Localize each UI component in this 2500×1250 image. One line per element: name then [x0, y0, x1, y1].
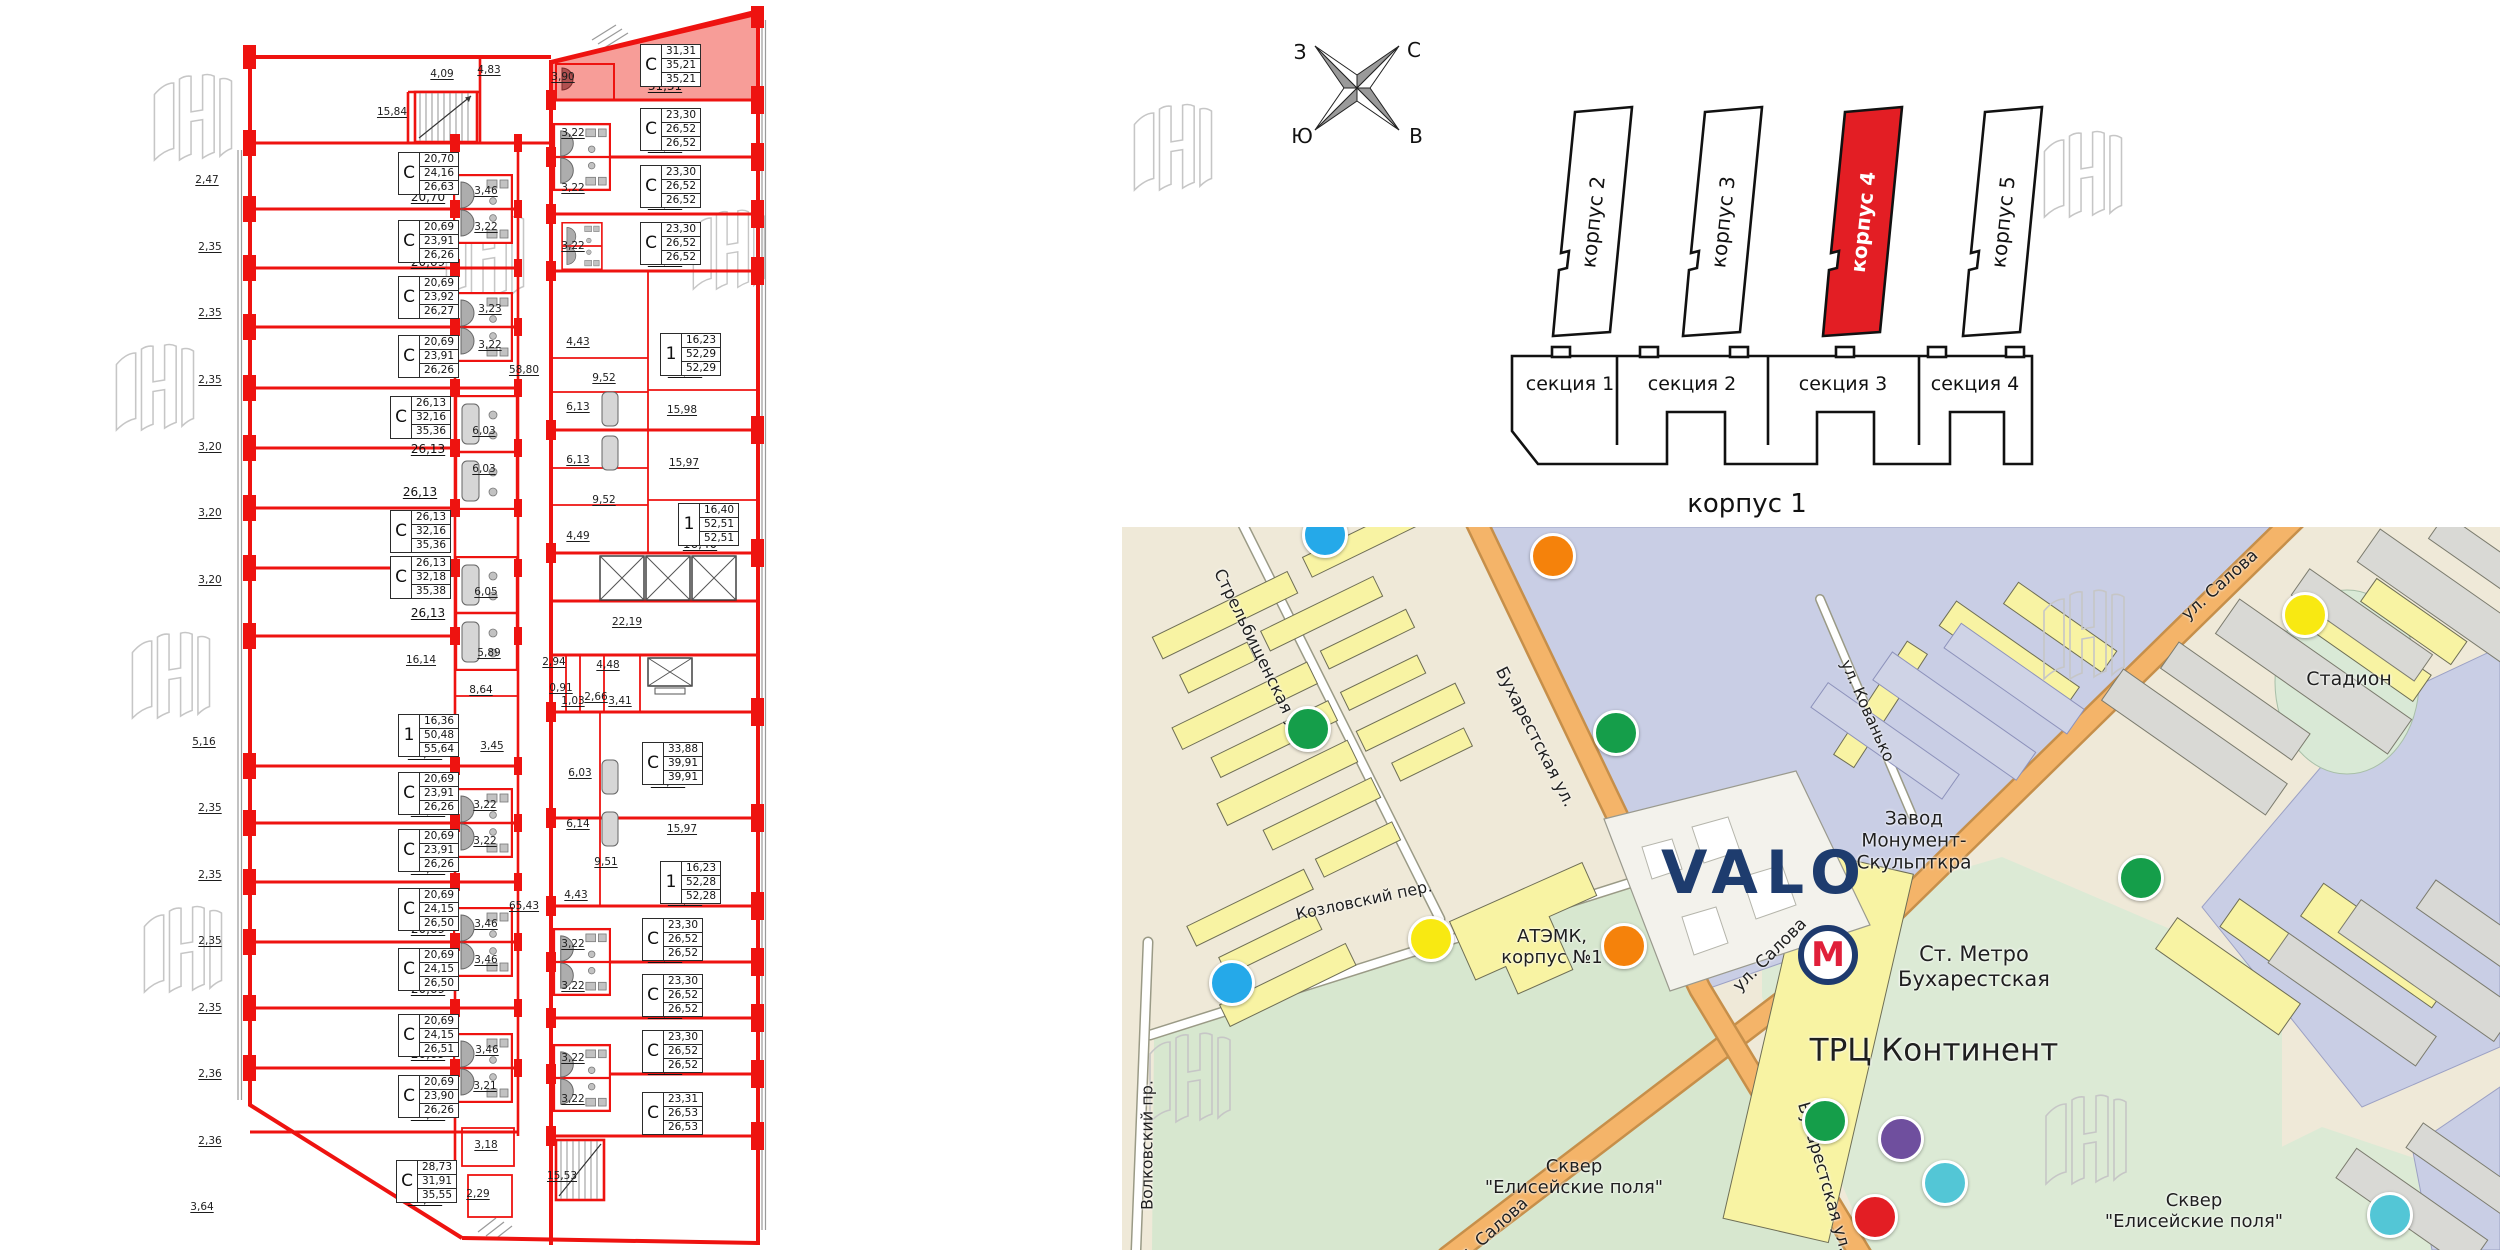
unit-label[interactable]: С20,6923,9226,27 — [398, 276, 459, 319]
dimension-label: 2,35 — [198, 307, 221, 319]
section-2[interactable]: секция 2 — [1648, 373, 1736, 395]
map-marker[interactable] — [1601, 923, 1647, 969]
section-4[interactable]: секция 4 — [1931, 373, 2019, 395]
unit-label[interactable]: 116,4052,5152,51 — [678, 503, 739, 546]
unit-label[interactable]: С23,3026,5226,52 — [642, 1030, 703, 1073]
unit-label[interactable]: 116,2352,2952,29 — [660, 333, 721, 376]
map-label: Козловский пер. — [1294, 877, 1434, 924]
unit-label[interactable]: С26,1332,1835,38 — [390, 556, 451, 599]
metro-icon: М — [1798, 925, 1858, 985]
dimension-label: 58,80 — [509, 364, 539, 376]
unit-label[interactable]: С28,7331,9135,55 — [396, 1160, 457, 1203]
map-marker[interactable] — [2118, 855, 2164, 901]
dimension-label: 15,97 — [667, 823, 697, 835]
dimension-label: 2,35 — [198, 802, 221, 814]
dimension-label: 3,18 — [474, 1139, 497, 1151]
dimension-label: 3,22 — [561, 938, 584, 950]
unit-label[interactable]: С26,1332,1635,36 — [390, 510, 451, 553]
dimension-label: 5,89 — [477, 647, 500, 659]
unit-label[interactable]: 116,2352,2852,28 — [660, 861, 721, 904]
unit-label[interactable]: С20,6923,9126,26 — [398, 335, 459, 378]
page: С20,7024,1626,6320,70С20,6923,9126,2620,… — [0, 0, 2500, 1250]
unit-label[interactable]: С20,6923,9126,26 — [398, 772, 459, 815]
unit-label[interactable]: С23,3026,5226,52 — [642, 974, 703, 1017]
room-area-label: 26,13 — [403, 485, 437, 499]
dimension-label: 2,66 — [584, 691, 607, 703]
dimension-label: 15,53 — [547, 1170, 577, 1182]
dimension-label: 22,19 — [612, 616, 642, 628]
unit-label[interactable]: С20,6924,1526,51 — [398, 1014, 459, 1057]
dimension-label: 0,91 — [549, 682, 572, 694]
map-marker[interactable] — [2282, 592, 2328, 638]
dimension-label: 3,22 — [478, 339, 501, 351]
room-area-label: 26,13 — [411, 606, 445, 620]
dimension-label: 6,03 — [472, 425, 495, 437]
dimension-label: 2,36 — [198, 1068, 221, 1080]
map-label: Волковский пр. — [1139, 1080, 1158, 1210]
floorplan-labels: С20,7024,1626,6320,70С20,6923,9126,2620,… — [0, 0, 800, 1250]
dimension-label: 65,43 — [509, 900, 539, 912]
dimension-label: 5,16 — [192, 736, 215, 748]
map-label: Ст. Метро Бухарестская — [1898, 942, 2050, 992]
building1-shape — [1512, 347, 2032, 464]
dimension-label: 2,29 — [466, 1188, 489, 1200]
dimension-label: 6,05 — [474, 586, 497, 598]
map-label: АТЭМК, корпус №1 — [1501, 926, 1603, 968]
unit-label[interactable]: 116,3650,4855,64 — [398, 714, 459, 757]
dimension-label: 2,35 — [198, 935, 221, 947]
map-label: ТРЦ Континент — [1810, 1033, 2059, 1070]
dimension-label: 6,13 — [566, 401, 589, 413]
room-area-label: 26,13 — [411, 442, 445, 456]
dimension-label: 9,52 — [592, 372, 615, 384]
section-1[interactable]: секция 1 — [1526, 373, 1614, 395]
dimension-label: 4,09 — [430, 68, 453, 80]
compass-west: З — [1294, 40, 1307, 64]
building1-label: корпус 1 — [1687, 489, 1807, 519]
map-marker[interactable] — [1209, 960, 1255, 1006]
dimension-label: 2,36 — [198, 1135, 221, 1147]
dimension-label: 3,64 — [190, 1201, 213, 1213]
dimension-label: 3,20 — [198, 574, 221, 586]
dimension-label: 3,20 — [198, 441, 221, 453]
dimension-label: 8,64 — [469, 684, 492, 696]
unit-label[interactable]: С23,3026,5226,52 — [640, 222, 701, 265]
dimension-label: 15,84 — [377, 106, 407, 118]
unit-label[interactable]: С20,6923,9126,26 — [398, 220, 459, 263]
map-marker[interactable] — [1302, 527, 1348, 558]
dimension-label: 3,20 — [198, 507, 221, 519]
dimension-label: 3,22 — [561, 1093, 584, 1105]
compass-north: С — [1407, 38, 1421, 62]
map-label: Стадион — [2306, 668, 2392, 690]
dimension-label: 3,21 — [473, 1080, 496, 1092]
map-marker[interactable] — [1852, 1194, 1898, 1240]
dimension-label: 4,83 — [477, 64, 500, 76]
dimension-label: 3,22 — [474, 221, 497, 233]
unit-label[interactable]: С23,3026,5226,52 — [640, 108, 701, 151]
unit-label[interactable]: С20,7024,1626,63 — [398, 152, 459, 195]
unit-label[interactable]: С26,1332,1635,36 — [390, 396, 451, 439]
dimension-label: 4,48 — [596, 659, 619, 671]
unit-label[interactable]: С23,3026,5226,52 — [640, 165, 701, 208]
map-marker[interactable] — [1530, 533, 1576, 579]
dimension-label: 9,51 — [594, 856, 617, 868]
map-marker[interactable] — [1408, 916, 1454, 962]
dimension-label: 3,22 — [561, 240, 584, 252]
unit-label[interactable]: С23,3126,5326,53 — [642, 1092, 703, 1135]
map-label: Сквер "Елисейские поля" — [1485, 1156, 1663, 1198]
compass-south: Ю — [1291, 124, 1313, 148]
dimension-label: 9,52 — [592, 494, 615, 506]
map-label: Бухарестская ул. — [1491, 664, 1579, 811]
dimension-label: 3,46 — [474, 954, 497, 966]
dimension-label: 3,46 — [474, 185, 497, 197]
dimension-label: 3,23 — [478, 303, 501, 315]
dimension-label: 16,14 — [406, 654, 436, 666]
dimension-label: 4,43 — [566, 336, 589, 348]
dimension-label: 3,46 — [475, 1044, 498, 1056]
dimension-label: 3,22 — [561, 980, 584, 992]
map-marker[interactable] — [2367, 1192, 2413, 1238]
valo-logo: VALO — [1661, 838, 1869, 908]
dimension-label: 2,35 — [198, 241, 221, 253]
site-diagram: З С Ю В корпус 2 корпус 3 корпус 4 корпу… — [1100, 20, 2160, 540]
map-label: ул. Салова — [1448, 1194, 1533, 1250]
dimension-label: 15,97 — [669, 457, 699, 469]
dimension-label: 2,35 — [198, 374, 221, 386]
dimension-label: 2,35 — [198, 869, 221, 881]
map-marker[interactable] — [1802, 1098, 1848, 1144]
dimension-label: 4,49 — [566, 530, 589, 542]
compass-rose — [1315, 46, 1399, 130]
compass-east: В — [1409, 124, 1423, 148]
unit-label[interactable]: С20,6924,1526,50 — [398, 948, 459, 991]
dimension-label: 2,47 — [195, 174, 218, 186]
tower-shapes — [1553, 107, 2042, 336]
dimension-label: 4,43 — [564, 889, 587, 901]
dimension-label: 3,22 — [561, 182, 584, 194]
map-label: ул. Салова — [2178, 546, 2263, 625]
dimension-label: 3,90 — [551, 71, 574, 83]
unit-label[interactable]: С20,6924,1526,50 — [398, 888, 459, 931]
dimension-label: 2,35 — [198, 1002, 221, 1014]
dimension-label: 6,14 — [566, 818, 589, 830]
dimension-label: 3,22 — [561, 127, 584, 139]
dimension-label: 15,98 — [667, 404, 697, 416]
dimension-label: 6,03 — [568, 767, 591, 779]
dimension-label: 3,46 — [474, 918, 497, 930]
dimension-label: 3,41 — [608, 695, 631, 707]
section-3[interactable]: секция 3 — [1799, 373, 1887, 395]
dimension-label: 3,45 — [480, 740, 503, 752]
dimension-label: 6,13 — [566, 454, 589, 466]
unit-label[interactable]: С33,8839,9139,91 — [642, 742, 703, 785]
map-marker[interactable] — [1285, 706, 1331, 752]
dimension-label: 2,94 — [542, 656, 565, 668]
unit-label[interactable]: С20,6923,9126,26 — [398, 829, 459, 872]
location-map: VALO М Стрельбищенская ул.Бухарестская у… — [1122, 527, 2500, 1250]
map-label: Завод Монумент- Скульпткра — [1857, 808, 1972, 873]
dimension-label: 1,03 — [561, 695, 584, 707]
map-label: Сквер "Елисейские поля" — [2105, 1190, 2283, 1232]
dimension-label: 6,03 — [472, 463, 495, 475]
dimension-label: 3,22 — [561, 1052, 584, 1064]
map-marker[interactable] — [1593, 710, 1639, 756]
unit-label[interactable]: С31,3135,2135,21 — [640, 44, 701, 87]
unit-label[interactable]: С23,3026,5226,52 — [642, 918, 703, 961]
map-marker[interactable] — [1922, 1160, 1968, 1206]
dimension-label: 3,22 — [473, 799, 496, 811]
unit-label[interactable]: С20,6923,9026,26 — [398, 1075, 459, 1118]
map-label: ул. Кованько — [1836, 657, 1898, 765]
map-marker[interactable] — [1878, 1116, 1924, 1162]
dimension-label: 3,22 — [473, 835, 496, 847]
